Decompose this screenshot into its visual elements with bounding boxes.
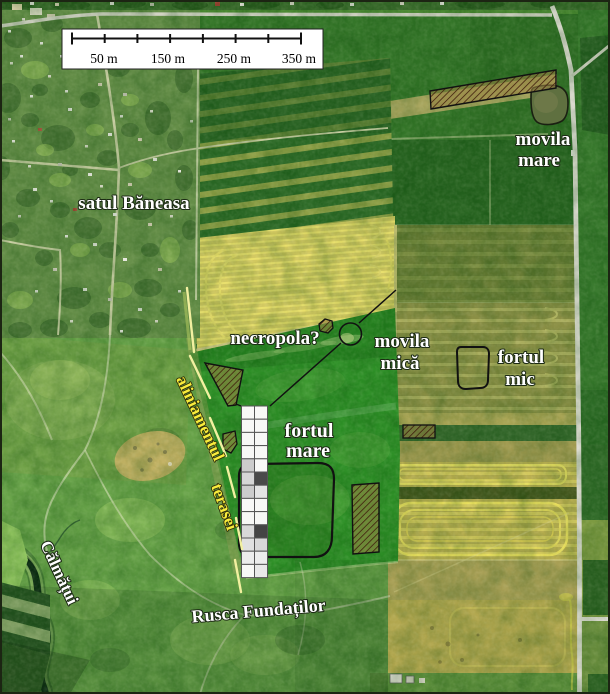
svg-text:mic: mic (505, 369, 535, 390)
svg-text:fortul: fortul (285, 420, 334, 442)
svg-text:movila: movila (375, 331, 430, 352)
svg-text:movila: movila (516, 129, 571, 150)
svg-text:necropola?: necropola? (230, 328, 319, 349)
svg-text:150 m: 150 m (151, 51, 186, 66)
svg-text:fortul: fortul (498, 347, 544, 368)
svg-text:250 m: 250 m (217, 51, 252, 66)
svg-text:350 m: 350 m (282, 51, 317, 66)
svg-text:mare: mare (286, 440, 330, 462)
svg-text:50 m: 50 m (90, 51, 118, 66)
svg-text:mare: mare (518, 150, 560, 171)
svg-text:mică: mică (380, 353, 420, 374)
svg-text:satul Băneasa: satul Băneasa (78, 193, 190, 214)
